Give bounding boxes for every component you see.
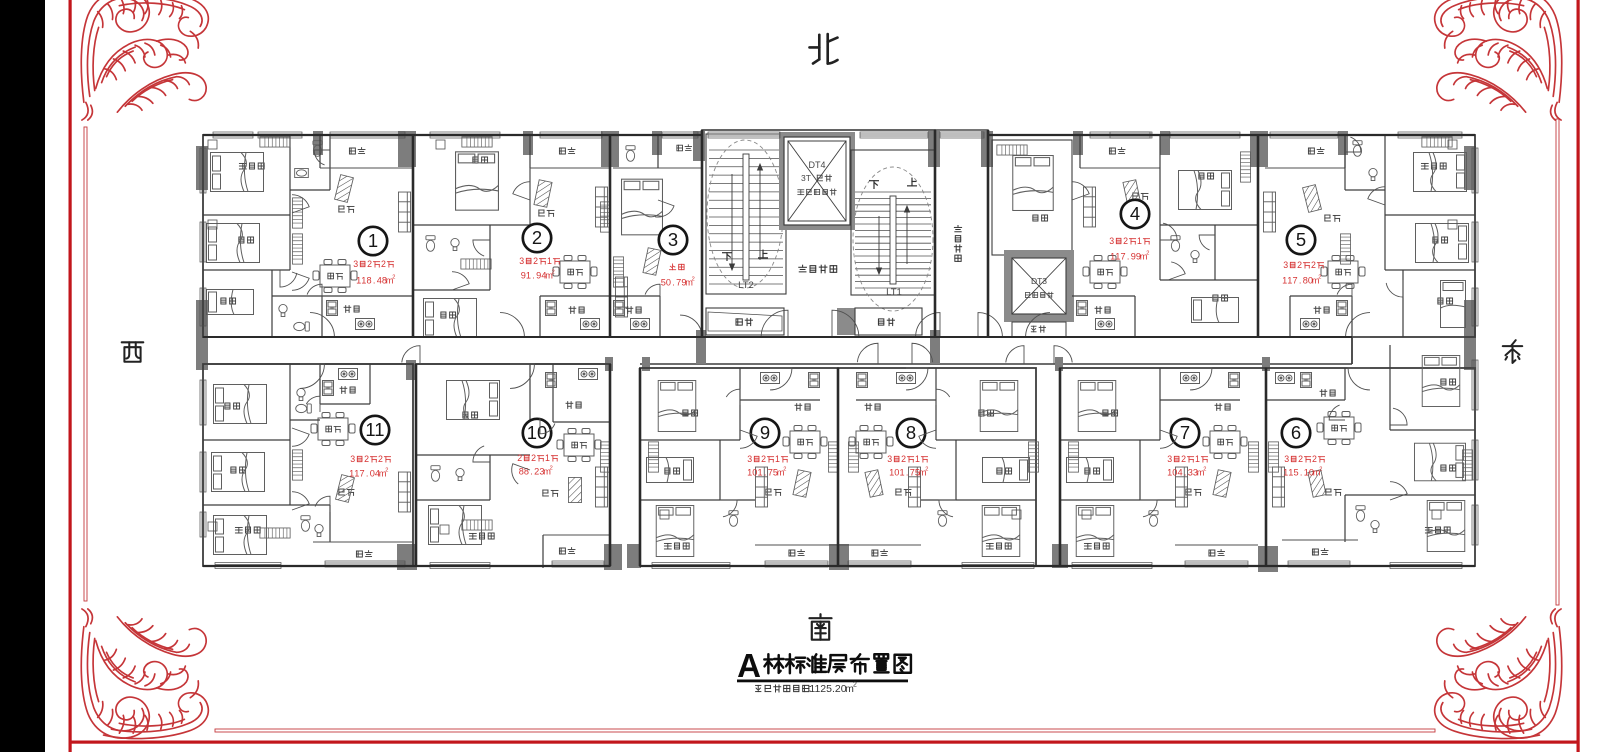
svg-text:2: 2: [381, 259, 386, 269]
svg-text:.: .: [764, 467, 767, 477]
svg-text:2: 2: [531, 453, 536, 463]
svg-text:3: 3: [1109, 236, 1114, 246]
svg-text:2: 2: [925, 467, 928, 473]
svg-text:2: 2: [532, 227, 542, 248]
svg-text:2: 2: [1318, 275, 1321, 281]
svg-text:2: 2: [1319, 467, 1322, 473]
svg-text:2: 2: [367, 259, 372, 269]
svg-text:DT3: DT3: [1031, 276, 1047, 286]
svg-text:11: 11: [365, 419, 384, 440]
svg-text:2: 2: [385, 468, 388, 474]
svg-text:.: .: [373, 275, 376, 285]
svg-text:8: 8: [366, 275, 371, 285]
svg-text:1: 1: [899, 467, 904, 477]
svg-text:3T: 3T: [801, 173, 811, 183]
svg-text:.: .: [906, 467, 909, 477]
svg-text:7: 7: [1292, 275, 1297, 285]
svg-text:3: 3: [668, 229, 678, 250]
svg-text:9: 9: [760, 422, 770, 443]
svg-text:2: 2: [1311, 260, 1316, 270]
svg-text:1125.20: 1125.20: [809, 683, 846, 695]
svg-text:1: 1: [368, 230, 378, 251]
svg-text:.: .: [672, 277, 675, 287]
svg-text:2: 2: [517, 453, 522, 463]
svg-text:2: 2: [392, 275, 395, 281]
svg-text:2: 2: [853, 682, 857, 689]
svg-text:2: 2: [692, 277, 695, 283]
svg-text:4: 4: [1130, 203, 1140, 224]
svg-text:.: .: [1299, 275, 1302, 285]
svg-text:8: 8: [906, 422, 916, 443]
svg-text:2: 2: [550, 466, 553, 472]
svg-text:.: .: [1127, 251, 1130, 261]
svg-text:2: 2: [1146, 251, 1149, 257]
svg-text:5: 5: [1293, 467, 1298, 477]
svg-text:.: .: [530, 466, 533, 476]
svg-text:3: 3: [350, 454, 355, 464]
svg-text:7: 7: [359, 468, 364, 478]
svg-text:7: 7: [1120, 251, 1125, 261]
svg-text:2: 2: [1181, 454, 1186, 464]
svg-text:1: 1: [545, 453, 550, 463]
svg-text:3: 3: [1167, 454, 1172, 464]
svg-text:LT2: LT2: [738, 280, 754, 291]
svg-text:0: 0: [666, 277, 671, 287]
svg-text:10: 10: [527, 422, 548, 443]
svg-text:3: 3: [1283, 260, 1288, 270]
svg-text:.: .: [1184, 467, 1187, 477]
svg-text:2: 2: [1298, 454, 1303, 464]
svg-text:3: 3: [1284, 454, 1289, 464]
svg-text:1: 1: [1195, 454, 1200, 464]
svg-text:1: 1: [1137, 236, 1142, 246]
svg-text:1: 1: [526, 270, 531, 280]
svg-text:A: A: [737, 647, 761, 684]
svg-text:6: 6: [1291, 422, 1301, 443]
svg-text:2: 2: [761, 454, 766, 464]
svg-text:4: 4: [1177, 467, 1182, 477]
svg-text:LT1: LT1: [886, 287, 902, 298]
svg-text:2: 2: [533, 256, 538, 266]
svg-text:.: .: [1300, 467, 1303, 477]
svg-text:2: 2: [378, 454, 383, 464]
svg-text:3: 3: [747, 454, 752, 464]
svg-text:2: 2: [552, 270, 555, 276]
svg-text:DT4: DT4: [808, 160, 825, 170]
svg-text:3: 3: [887, 454, 892, 464]
svg-text:3: 3: [519, 256, 524, 266]
svg-text:.: .: [366, 468, 369, 478]
svg-text:7: 7: [1180, 422, 1190, 443]
svg-text:2: 2: [901, 454, 906, 464]
svg-text:2: 2: [1297, 260, 1302, 270]
svg-text:1: 1: [775, 454, 780, 464]
svg-text:1: 1: [915, 454, 920, 464]
svg-text:1: 1: [547, 256, 552, 266]
svg-text:1: 1: [757, 467, 762, 477]
svg-text:.: .: [532, 270, 535, 280]
svg-text:2: 2: [1312, 454, 1317, 464]
svg-text:2: 2: [783, 467, 786, 473]
svg-text:2: 2: [1203, 467, 1206, 473]
svg-text:2: 2: [364, 454, 369, 464]
svg-text:2: 2: [1123, 236, 1128, 246]
svg-text:5: 5: [1296, 229, 1306, 250]
svg-text:3: 3: [353, 259, 358, 269]
